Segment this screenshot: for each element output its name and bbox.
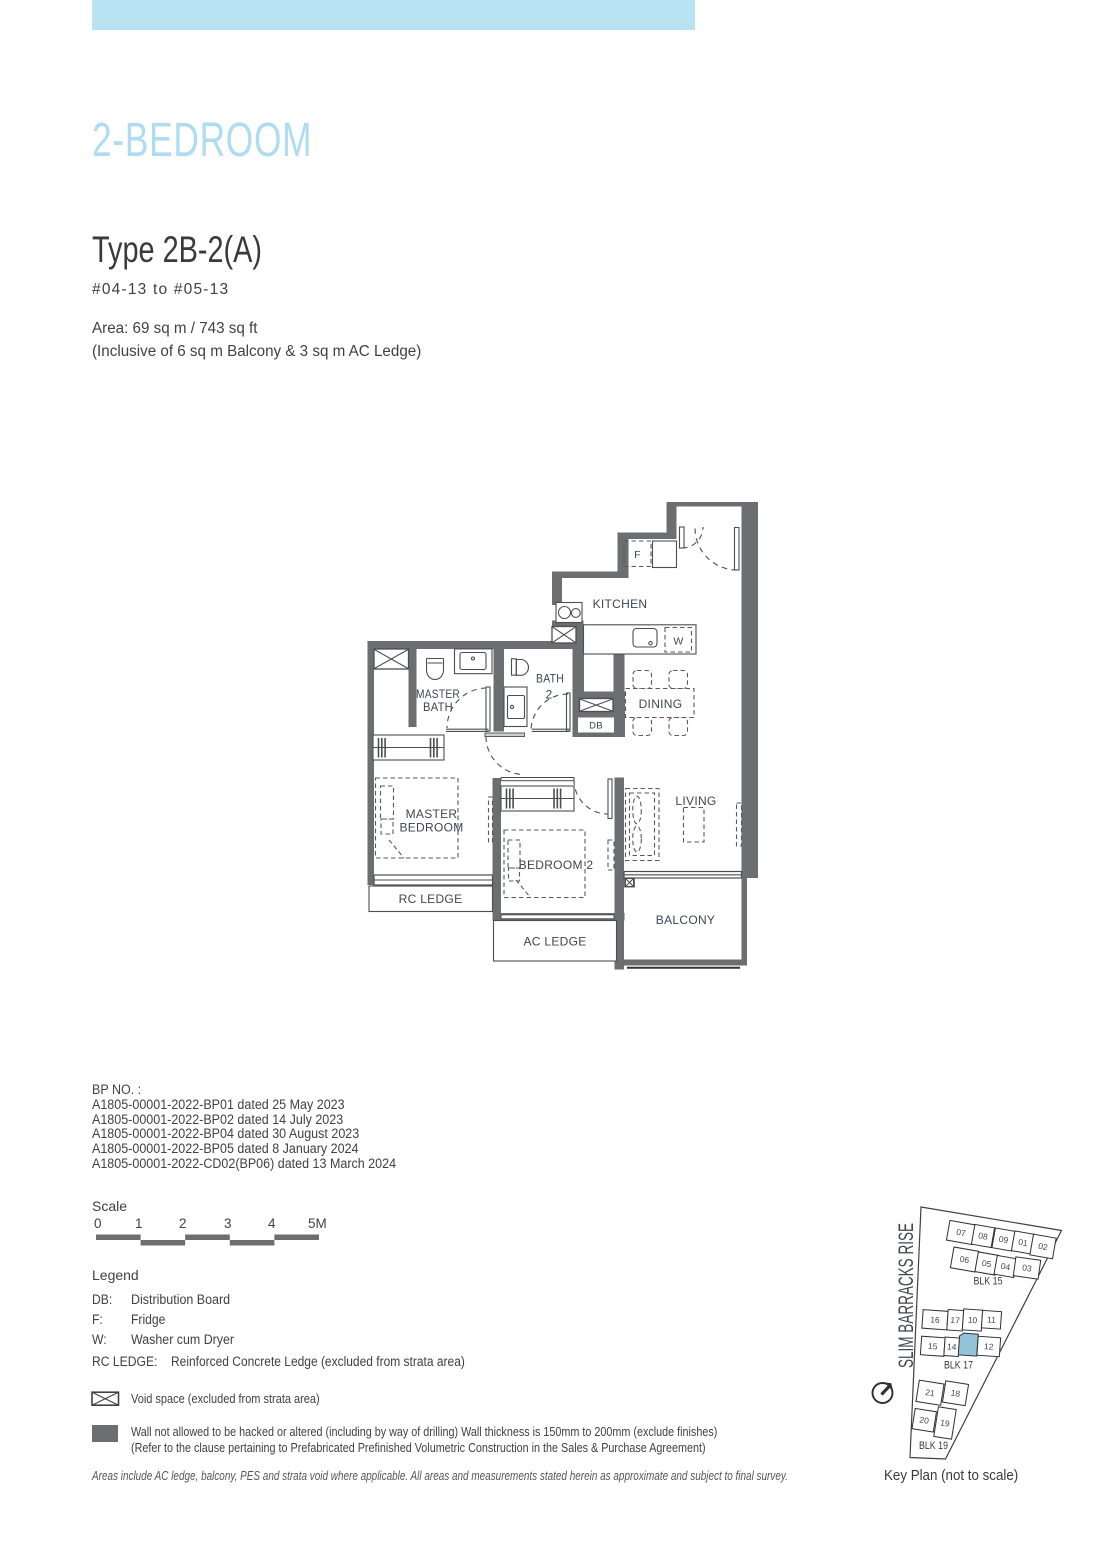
svg-text:04: 04 — [1000, 1261, 1011, 1273]
svg-text:14: 14 — [947, 1341, 957, 1352]
svg-text:BATH: BATH — [423, 700, 453, 714]
svg-text:19: 19 — [940, 1417, 951, 1428]
svg-text:2: 2 — [546, 688, 553, 702]
svg-text:BALCONY: BALCONY — [656, 913, 715, 927]
svg-text:12: 12 — [984, 1341, 994, 1352]
svg-text:18: 18 — [950, 1388, 961, 1399]
svg-text:SLIM BARRACKS RISE: SLIM BARRACKS RISE — [895, 1223, 918, 1368]
svg-text:03: 03 — [1022, 1262, 1033, 1273]
svg-text:BLK 17: BLK 17 — [944, 1360, 973, 1372]
svg-text:BATH: BATH — [536, 672, 564, 686]
svg-text:20: 20 — [919, 1415, 930, 1426]
svg-text:09: 09 — [998, 1234, 1009, 1246]
svg-text:AC LEDGE: AC LEDGE — [523, 935, 586, 949]
svg-text:01: 01 — [1017, 1237, 1028, 1249]
svg-text:08: 08 — [977, 1230, 988, 1242]
svg-text:DB: DB — [589, 721, 603, 732]
svg-text:DINING: DINING — [639, 697, 683, 711]
svg-text:MASTER: MASTER — [406, 807, 458, 821]
svg-text:BEDROOM: BEDROOM — [399, 821, 463, 835]
svg-text:LIVING: LIVING — [675, 794, 716, 808]
svg-text:BEDROOM 2: BEDROOM 2 — [519, 858, 594, 872]
svg-text:05: 05 — [981, 1258, 992, 1270]
svg-text:BLK 15: BLK 15 — [974, 1276, 1003, 1288]
svg-text:RC LEDGE: RC LEDGE — [399, 892, 463, 906]
svg-text:07: 07 — [955, 1227, 966, 1239]
svg-text:BLK 19: BLK 19 — [919, 1440, 948, 1452]
svg-text:17: 17 — [950, 1315, 960, 1326]
svg-text:11: 11 — [987, 1314, 997, 1325]
svg-text:F: F — [634, 549, 641, 561]
svg-text:10: 10 — [967, 1315, 977, 1326]
svg-text:KITCHEN: KITCHEN — [593, 597, 648, 611]
svg-text:W: W — [673, 636, 683, 648]
svg-text:21: 21 — [925, 1387, 936, 1398]
svg-text:MASTER: MASTER — [416, 687, 460, 701]
svg-text:16: 16 — [930, 1314, 940, 1325]
svg-text:06: 06 — [959, 1254, 970, 1266]
svg-text:02: 02 — [1037, 1241, 1048, 1253]
svg-text:15: 15 — [928, 1341, 938, 1352]
